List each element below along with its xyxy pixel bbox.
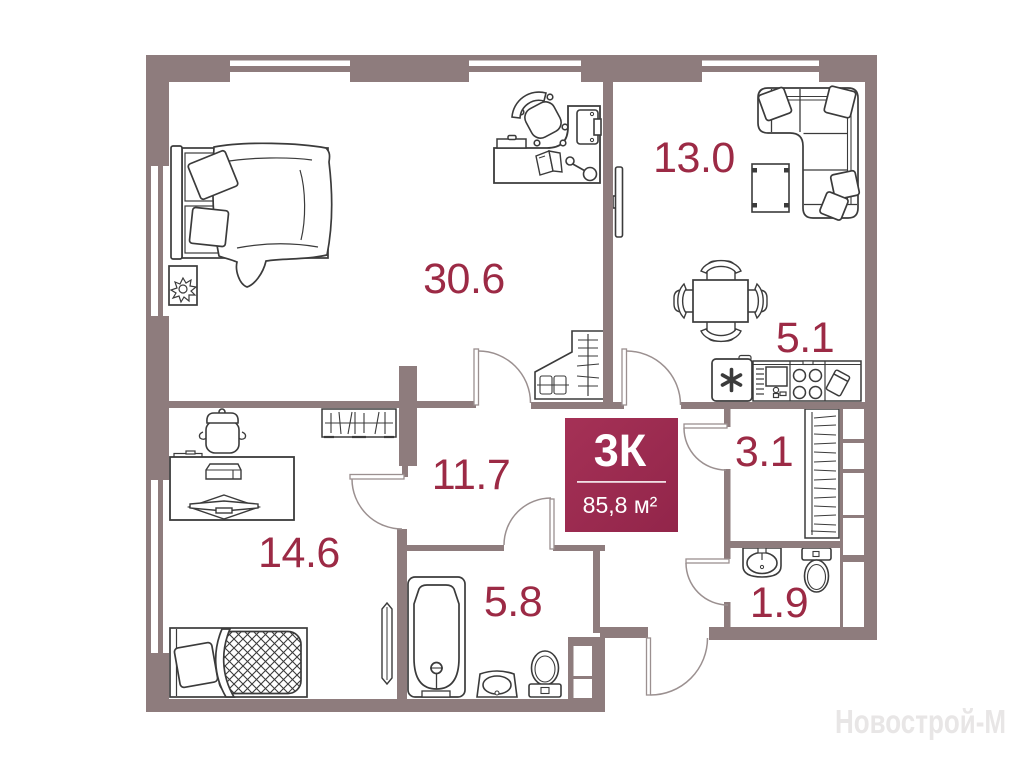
svg-text:5.1: 5.1: [776, 314, 834, 362]
svg-text:85,8 м²: 85,8 м²: [583, 492, 658, 518]
svg-text:Новострой-М: Новострой-М: [835, 703, 1006, 740]
svg-text:3.1: 3.1: [735, 428, 793, 476]
svg-text:5.8: 5.8: [484, 578, 542, 626]
svg-text:14.6: 14.6: [258, 529, 340, 577]
svg-text:11.7: 11.7: [432, 451, 511, 499]
svg-text:13.0: 13.0: [653, 134, 735, 182]
svg-text:30.6: 30.6: [423, 255, 505, 303]
svg-text:1.9: 1.9: [750, 579, 808, 627]
svg-text:3К: 3К: [594, 425, 647, 476]
